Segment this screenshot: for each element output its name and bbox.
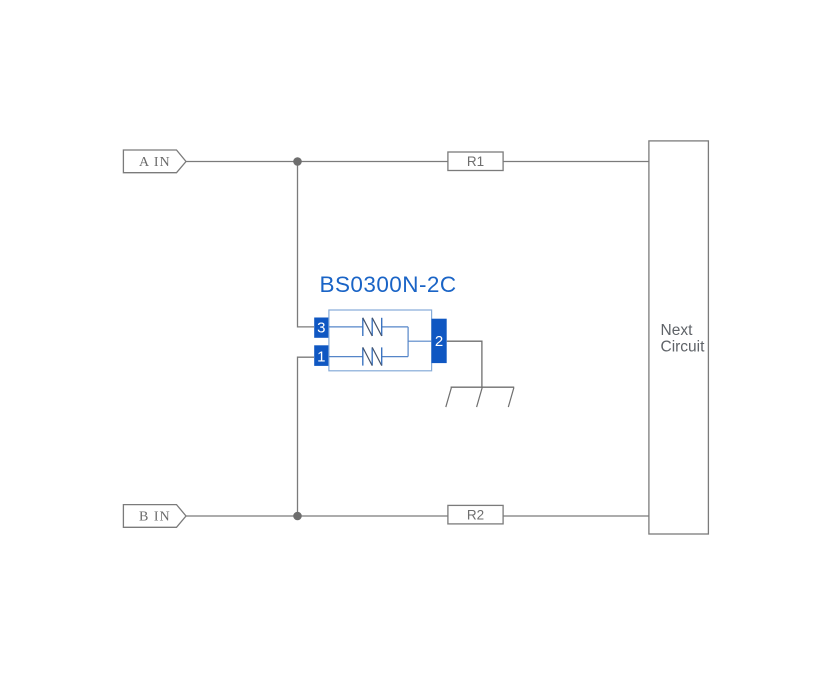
svg-text:A IN: A IN (139, 155, 171, 170)
svg-text:2: 2 (435, 333, 443, 350)
svg-text:Circuit: Circuit (661, 338, 706, 355)
svg-text:BS0300N-2C: BS0300N-2C (320, 272, 457, 297)
svg-text:1: 1 (317, 348, 325, 365)
svg-text:3: 3 (317, 319, 325, 336)
svg-text:Next: Next (661, 322, 694, 339)
svg-text:B IN: B IN (139, 509, 171, 524)
svg-text:R1: R1 (467, 154, 484, 169)
svg-text:R2: R2 (467, 508, 484, 523)
